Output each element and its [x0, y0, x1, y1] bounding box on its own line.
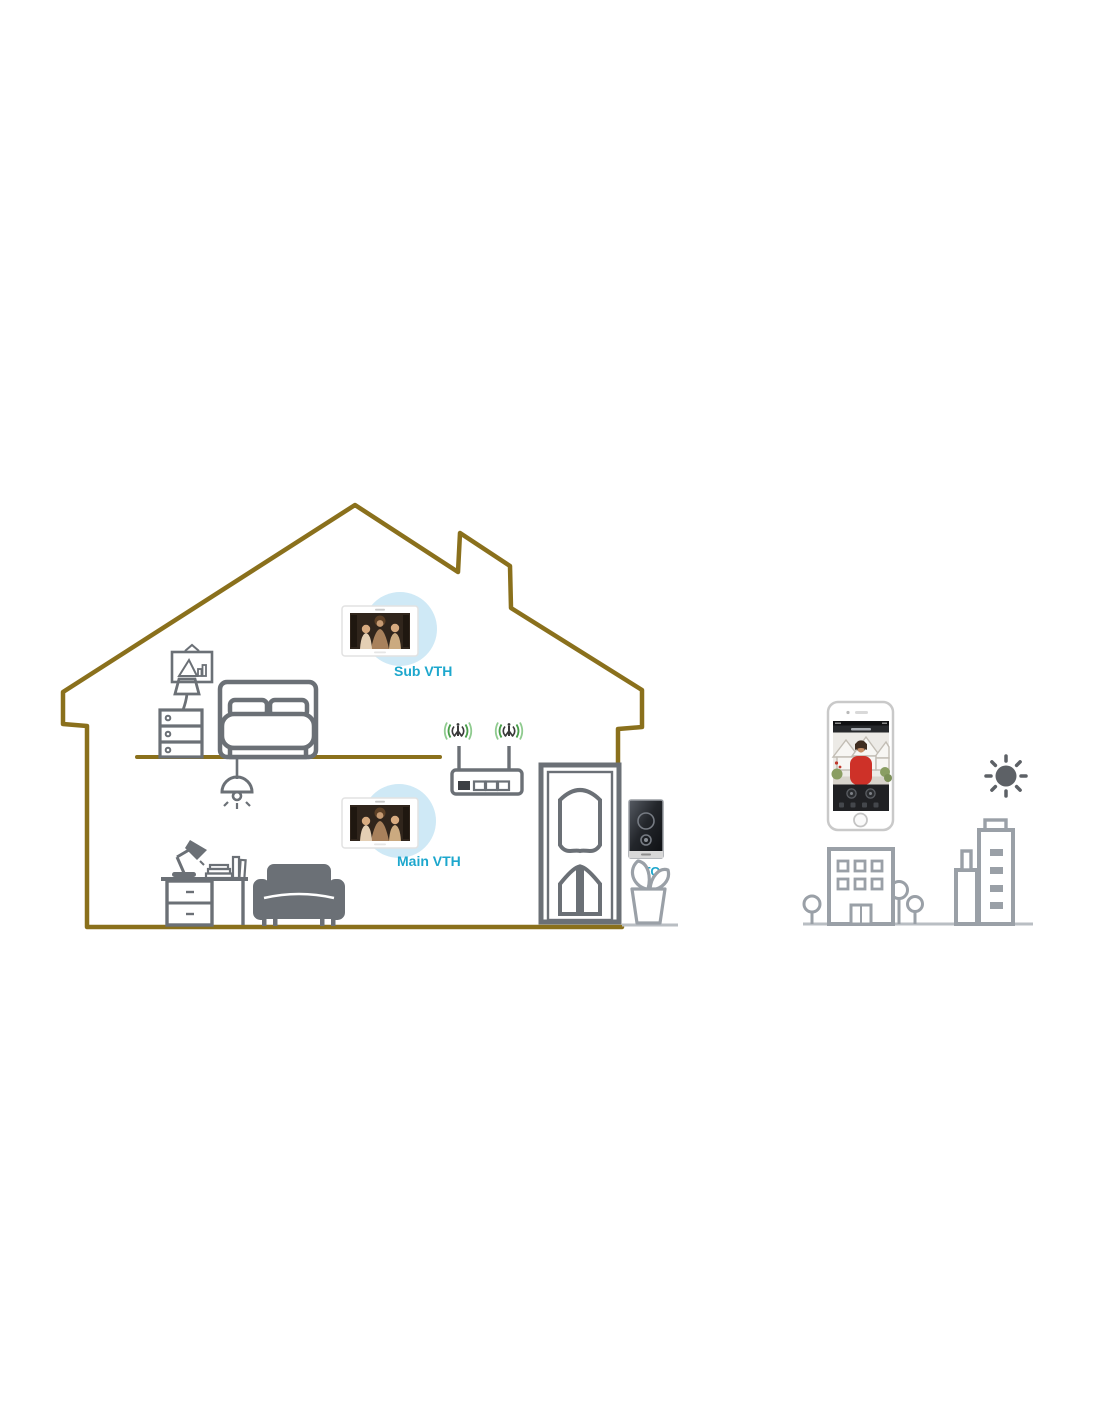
phone-video-preview [832, 733, 893, 786]
phone-home-button [854, 814, 867, 827]
books-icon [206, 857, 246, 878]
skyscraper-icon [956, 820, 1013, 924]
wifi-signal-icon [445, 723, 523, 740]
intercom-system-diagram: Sub VTH Main VTH [0, 0, 1100, 1422]
sub-vth-label: Sub VTH [394, 663, 452, 679]
wifi-router-icon [445, 723, 523, 795]
main-vth-monitor-icon [342, 798, 418, 848]
phone-screen [832, 721, 893, 811]
diagram-canvas: Sub VTH Main VTH [0, 0, 1100, 1422]
phone-speaker-slot [855, 711, 868, 714]
picture-frame-icon [172, 645, 212, 682]
phone-call-controls [833, 785, 889, 812]
desk-icon [161, 879, 248, 925]
sun-icon [986, 756, 1026, 796]
desk-lamp-icon [172, 840, 207, 877]
main-vth-label: Main VTH [397, 853, 461, 869]
main-vth: Main VTH [342, 784, 461, 869]
sofa-icon [253, 864, 345, 926]
phone-camera-dot [846, 711, 849, 714]
bed-icon [220, 682, 316, 757]
ceiling-lamp-icon [222, 759, 252, 809]
door-icon [541, 765, 619, 922]
office-building-icon [829, 849, 893, 924]
city-scene [803, 820, 1033, 924]
smartphone-icon [828, 702, 893, 830]
sub-vth-monitor-icon [342, 606, 418, 656]
vto-doorbell-icon [629, 800, 663, 858]
table-lamp-icon [175, 679, 199, 710]
nightstand-icon [160, 710, 202, 757]
sub-vth: Sub VTH [342, 592, 452, 679]
